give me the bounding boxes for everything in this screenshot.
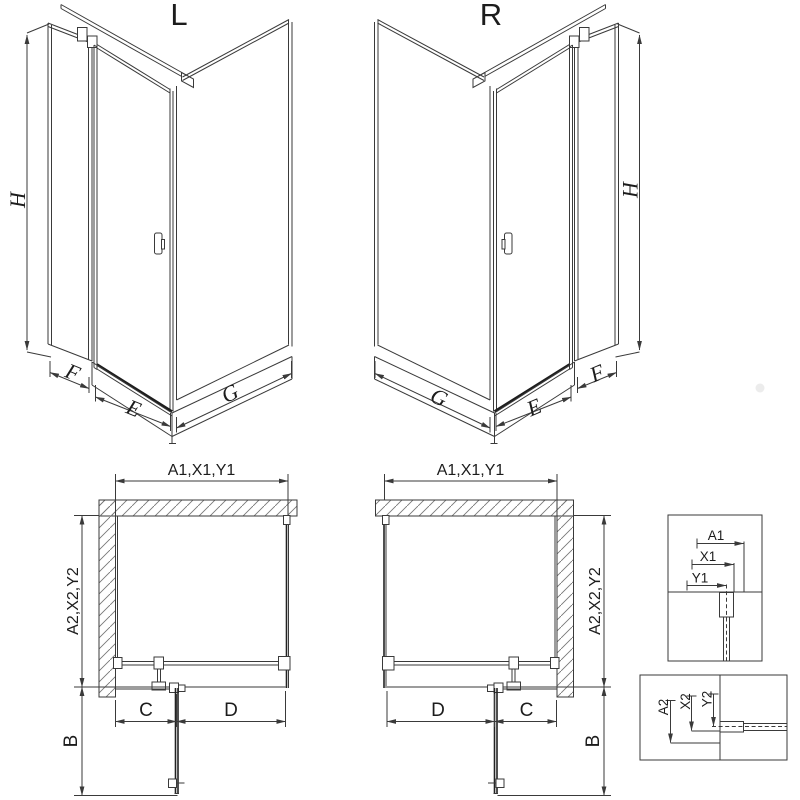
plan-left-width-label: A1,X1,Y1 [168, 462, 236, 479]
plan-left-b-label: B [61, 735, 82, 748]
detail-x1-label: X1 [700, 549, 717, 564]
watermark-dot [756, 384, 765, 393]
detail-a1-label: A1 [708, 528, 725, 543]
dim-label-f-right: F [585, 359, 609, 388]
plan-right-d-label: D [431, 700, 445, 721]
dim-label-f-left: F [61, 358, 84, 387]
plan-right-b-label: B [583, 735, 604, 748]
plan-left-geometry [74, 474, 297, 796]
plan-right-depth-label: A2,X2,Y2 [587, 567, 604, 635]
dim-label-g-left: G [217, 378, 242, 407]
plan-right-width-label: A1,X1,Y1 [437, 462, 505, 479]
detail-y2-label: Y2 [700, 691, 715, 708]
plan-left-c-label: C [139, 700, 153, 721]
plan-right-c-label: C [520, 700, 534, 721]
plan-left-d-label: D [224, 700, 238, 721]
plan-right-geometry [376, 474, 612, 796]
detail-a2-label: A2 [656, 699, 671, 716]
dim-label-e-right: E [522, 393, 546, 422]
detail-y1-label: Y1 [692, 571, 709, 586]
dim-label-h-right: H [618, 181, 643, 199]
detail-x2-label: X2 [678, 693, 693, 710]
detail-box-depth [640, 675, 787, 760]
dim-label-e-left: E [122, 394, 145, 423]
plan-left-depth-label: A2,X2,Y2 [65, 567, 82, 635]
iso-right-title: R [480, 0, 502, 32]
dim-label-g-right: G [427, 383, 452, 412]
shower-enclosure-technical-drawing: L R H F E G H F E G [0, 0, 800, 800]
iso-left-title: L [170, 0, 187, 32]
dim-label-h-left: H [5, 191, 30, 209]
